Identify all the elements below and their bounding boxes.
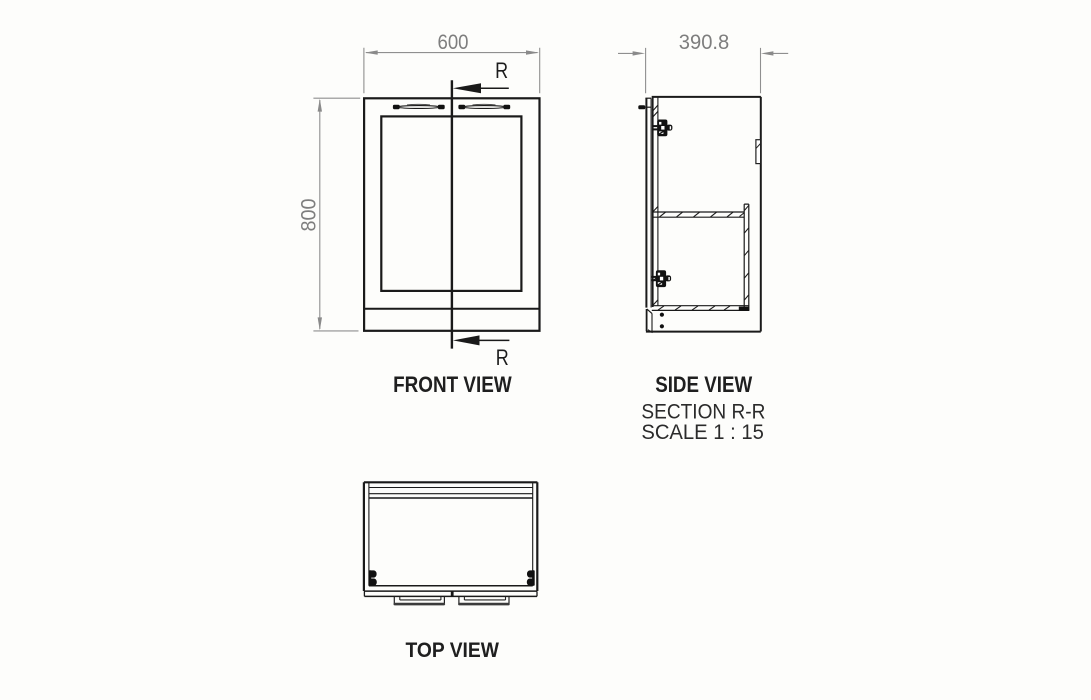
svg-text:TOP VIEW: TOP VIEW	[405, 638, 499, 662]
svg-text:SIDE VIEW: SIDE VIEW	[655, 372, 752, 397]
svg-text:R: R	[496, 345, 509, 370]
svg-text:R: R	[495, 58, 508, 83]
svg-text:SCALE 1 : 15: SCALE 1 : 15	[641, 420, 764, 444]
svg-text:800: 800	[298, 199, 321, 232]
svg-text:600: 600	[438, 30, 469, 54]
svg-text:FRONT VIEW: FRONT VIEW	[393, 372, 512, 397]
svg-text:390.8: 390.8	[679, 30, 730, 54]
